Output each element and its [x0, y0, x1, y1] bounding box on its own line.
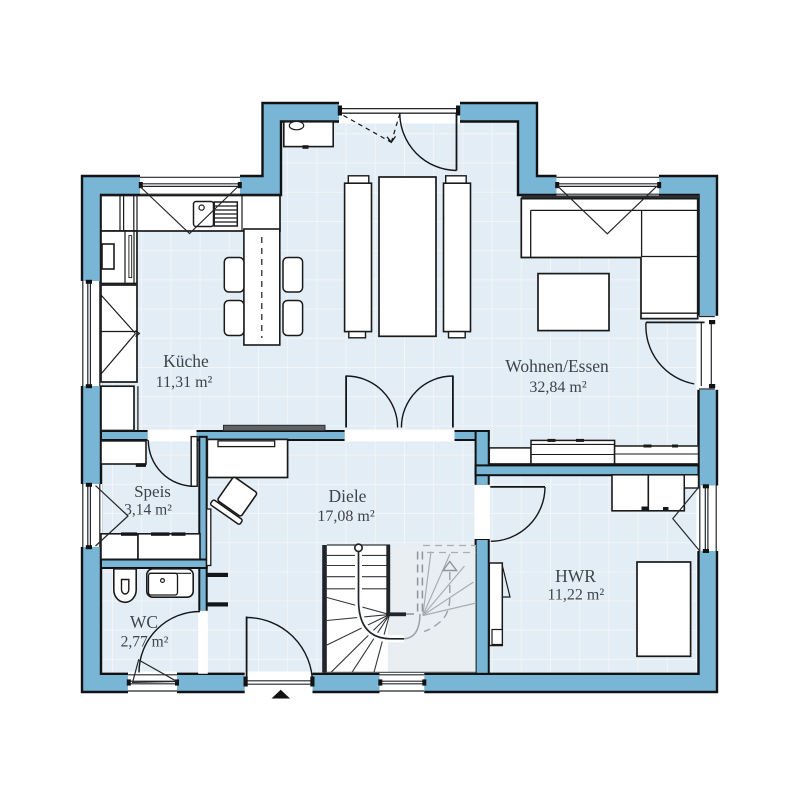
- svg-text:WC: WC: [130, 612, 158, 632]
- svg-text:2,77 m²: 2,77 m²: [121, 634, 169, 651]
- svg-text:3,14 m²: 3,14 m²: [124, 502, 172, 519]
- svg-text:Speis: Speis: [134, 482, 171, 501]
- svg-text:17,08 m²: 17,08 m²: [317, 508, 374, 525]
- svg-text:32,84 m²: 32,84 m²: [529, 379, 586, 396]
- svg-text:Wohnen/Essen: Wohnen/Essen: [505, 356, 609, 376]
- svg-text:11,31 m²: 11,31 m²: [156, 374, 213, 391]
- svg-text:Küche: Küche: [163, 351, 209, 371]
- svg-text:11,22 m²: 11,22 m²: [547, 587, 604, 604]
- svg-text:HWR: HWR: [555, 566, 596, 586]
- svg-text:Diele: Diele: [329, 486, 367, 506]
